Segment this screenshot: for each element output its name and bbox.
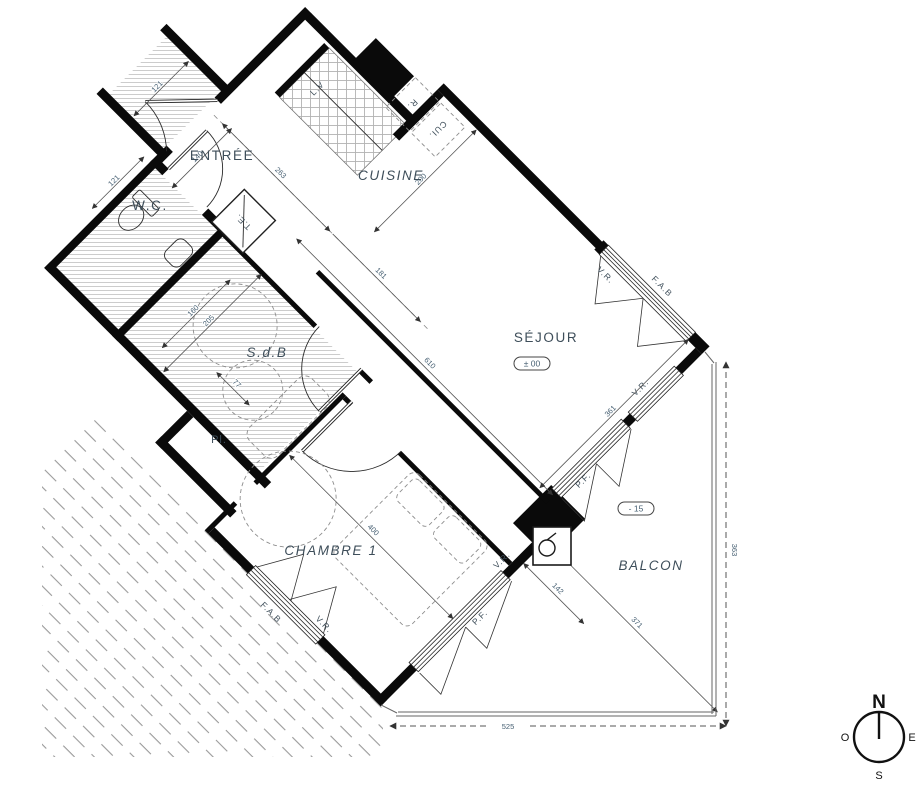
label-sejour: SÉJOUR [514,330,578,345]
floorplan-canvas: T.E. F.A.B V.R. V.R. [0,0,922,800]
label-entree: ENTRÉE [190,148,254,163]
dim-400: 400 [366,522,381,537]
dim-610: 610 [422,355,437,370]
compass-north: N [872,692,886,713]
label-cuisine: CUISINE [358,168,424,183]
label-sdb: S.d.B [246,345,287,360]
dim-181: 181 [374,266,389,281]
window-sejour-fab: F.A.B V.R. [572,235,705,368]
drain-symbol [533,527,571,565]
label-placard: Pl. [211,434,227,446]
dim-361: 361 [603,403,618,418]
label-wc: W.C. [132,198,168,213]
compass-west: O [841,732,850,744]
dim-363: 363 [730,544,739,557]
badge-balcon-level: - 15 [629,504,644,514]
compass-rose: N O E S [841,692,916,782]
window-sejour-vr: V.R. [618,356,683,421]
label-balcon: BALCON [618,558,683,573]
label-chambre: CHAMBRE 1 [284,543,377,558]
dim-142: 142 [550,581,565,596]
badge-sejour-level: ± 00 [524,359,541,369]
floor-plan-svg: T.E. F.A.B V.R. V.R. [0,0,922,800]
dim-525: 525 [502,722,515,731]
door-chambre-pf: V.R. P.F. [401,549,546,694]
dim-121-wc: 121 [106,173,121,188]
garden-hatch [42,414,383,757]
dim-263: 263 [273,165,288,180]
dim-371: 371 [629,615,644,630]
compass-east: E [908,732,915,744]
cooker-label: CUI. [427,119,449,141]
compass-south: S [875,770,882,782]
door-chambre [302,402,401,501]
